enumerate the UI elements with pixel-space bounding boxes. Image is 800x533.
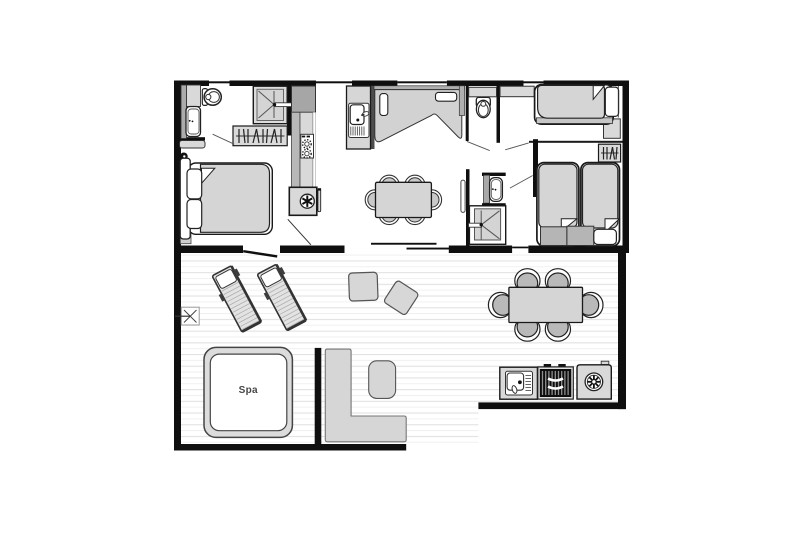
svg-text:Spa: Spa [239, 385, 258, 396]
